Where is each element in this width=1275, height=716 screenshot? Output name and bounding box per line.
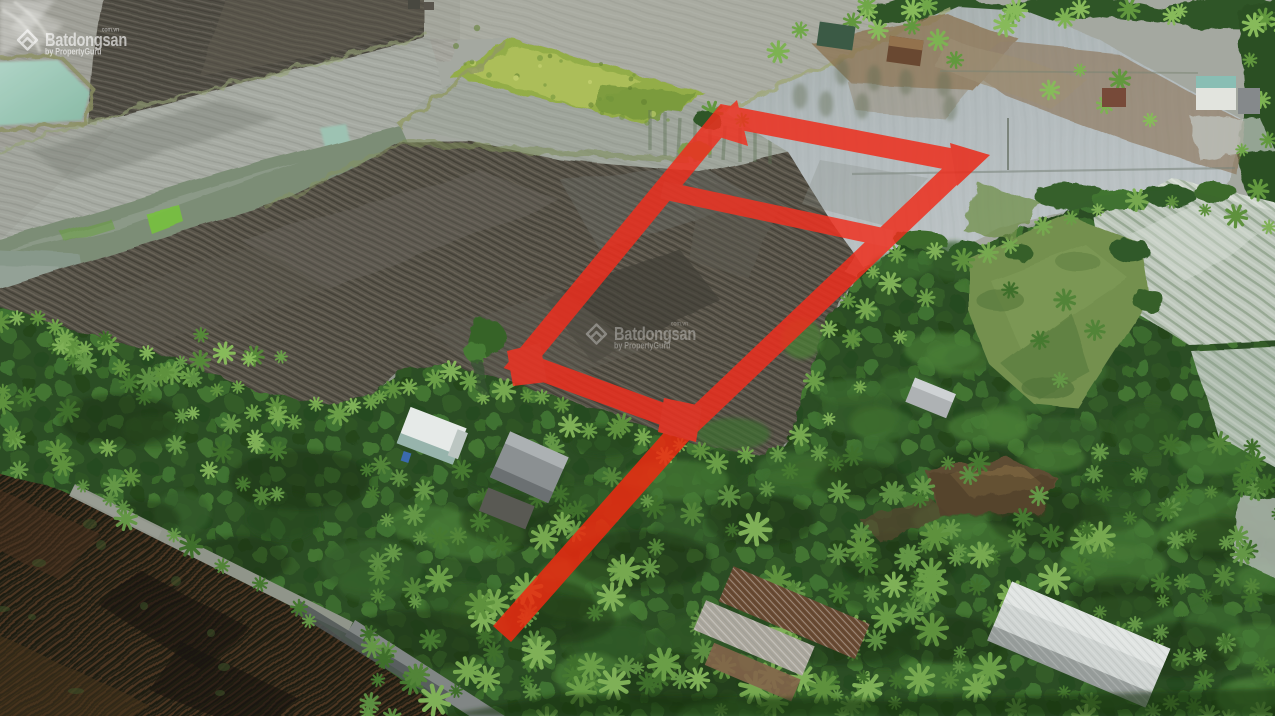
svg-text:by PropertyGuru: by PropertyGuru [614,341,671,351]
svg-text:by PropertyGuru: by PropertyGuru [45,47,102,57]
svg-text:.com.vn: .com.vn [669,320,688,328]
svg-text:.com.vn: .com.vn [100,26,119,34]
